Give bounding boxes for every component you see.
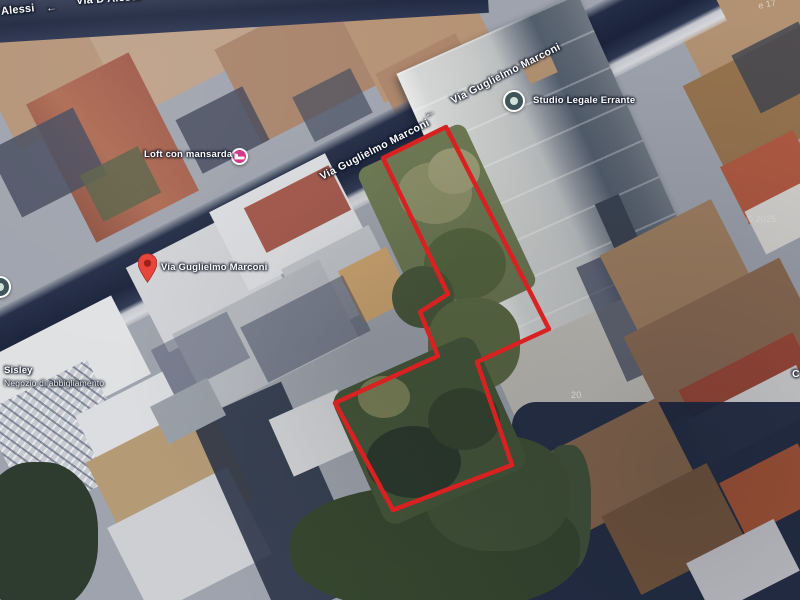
poi-center-dot [510,97,518,105]
poi-label-studio-legale[interactable]: Studio Legale Errante [533,95,635,106]
poi-center-dot [0,283,4,291]
property-outline-polygon[interactable] [335,127,549,510]
satellite-map-viewport[interactable]: Alessi ← Via D'Alessi Loft con mansarda … [0,0,800,600]
bed-glyph [233,150,246,163]
pin-label-via-marconi[interactable]: Via Guglielmo Marconi [161,262,267,273]
cutoff-label-right-edge: C [792,368,800,380]
map-overlay [0,0,800,600]
lodging-poi-icon[interactable] [231,148,248,165]
oneway-arrow-icon: ← [45,2,57,15]
imagery-watermark: © 2025 [746,214,776,224]
generic-poi-icon[interactable] [503,90,525,112]
poi-label-sisley-category: Negozio di abbigliamento [4,378,104,388]
poi-label-sisley[interactable]: Sisley [4,365,33,376]
house-number: 20 [571,390,581,400]
red-map-pin-icon[interactable] [138,250,157,286]
poi-label-loft[interactable]: Loft con mansarda [144,149,232,160]
